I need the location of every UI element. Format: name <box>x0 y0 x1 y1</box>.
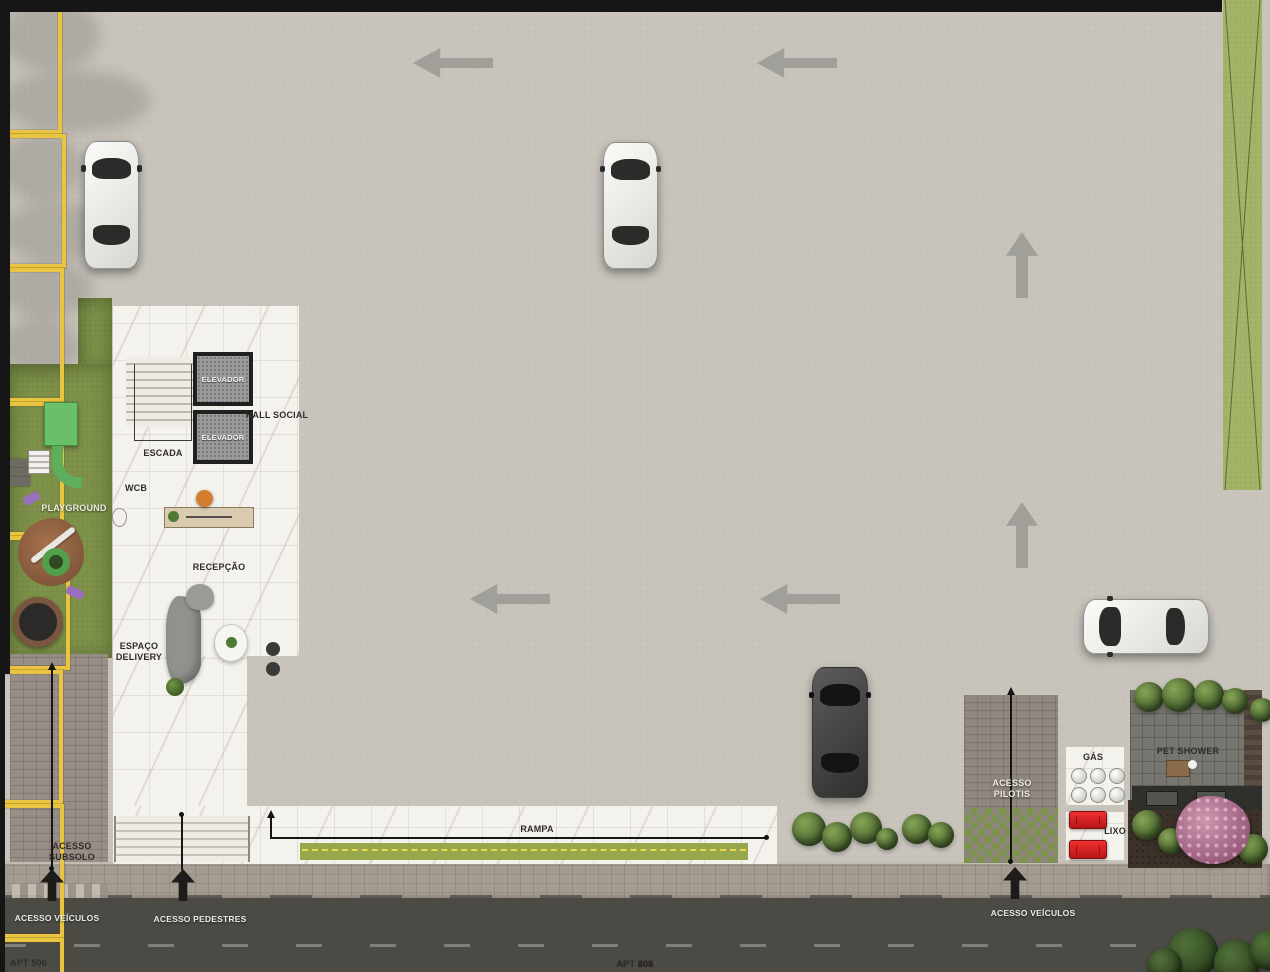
bush <box>792 812 826 846</box>
parking-floor-plan: APT 605APT 507APT 602APT 603APT 103APT 6… <box>0 0 1270 972</box>
bush <box>822 822 852 852</box>
flowering-tree <box>1176 796 1250 864</box>
bush <box>1134 682 1164 712</box>
bush <box>1162 678 1196 712</box>
bush <box>928 822 954 848</box>
bush <box>1132 810 1162 840</box>
bush <box>1194 680 1224 710</box>
bush <box>1250 698 1270 722</box>
bush <box>902 814 932 844</box>
bush <box>876 828 898 850</box>
plants-layer <box>0 0 1270 972</box>
bush <box>1222 688 1248 714</box>
